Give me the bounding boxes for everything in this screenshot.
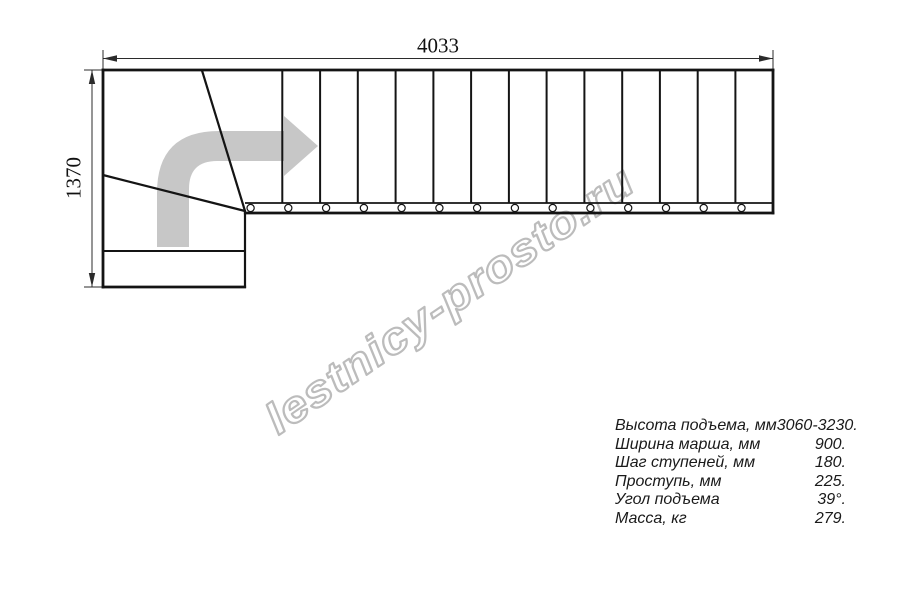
baluster-circle [738,204,745,211]
spec-row-tread-depth: Проступь, мм 225. [615,473,846,492]
baluster-circle [285,204,292,211]
baluster-circle [700,204,707,211]
spec-row-rise-angle: Угол подъема 39°. [615,491,846,510]
direction-arrow-icon [157,116,318,247]
stair-outline [102,69,775,289]
dimension-arrow-down [89,273,95,287]
baluster-circles [247,204,745,211]
spec-label: Высота подъема, мм [615,417,777,436]
baluster-circle [587,204,594,211]
spec-label: Угол подъема [615,491,720,510]
spec-value: 279. [815,510,846,529]
spec-label: Проступь, мм [615,473,721,492]
spec-row-flight-width: Ширина марша, мм 900. [615,436,846,455]
stair-drawing-canvas: lestnicy-prosto.ru [0,0,900,600]
spec-row-step-pitch: Шаг ступеней, мм 180. [615,454,846,473]
baluster-circle [360,204,367,211]
baluster-circle [323,204,330,211]
spec-label: Ширина марша, мм [615,436,760,455]
dimension-height-label: 1370 [62,157,87,199]
baluster-circle [436,204,443,211]
baluster-circle [474,204,481,211]
dimension-arrow-left [103,55,117,61]
dimension-arrow-up [89,70,95,84]
spec-value: 3060-3230. [777,417,858,436]
dimension-left [84,70,102,287]
spec-row-rise-height: Высота подъема, мм 3060-3230. [615,417,846,436]
spec-value: 225. [815,473,846,492]
baluster-circle [247,204,254,211]
baluster-circle [398,204,405,211]
spec-value: 180. [815,454,846,473]
spec-label: Масса, кг [615,510,687,529]
baluster-circle [511,204,518,211]
spec-value: 39°. [817,491,846,510]
spec-table: Высота подъема, мм 3060-3230. Ширина мар… [615,417,846,529]
dimension-width-label: 4033 [417,34,459,59]
baluster-circle [549,204,556,211]
spec-label: Шаг ступеней, мм [615,454,755,473]
spec-row-mass: Масса, кг 279. [615,510,846,529]
baluster-circle [625,204,632,211]
spec-value: 900. [815,436,846,455]
tread-lines [282,71,735,203]
baluster-circle [662,204,669,211]
dimension-arrow-right [759,55,773,61]
